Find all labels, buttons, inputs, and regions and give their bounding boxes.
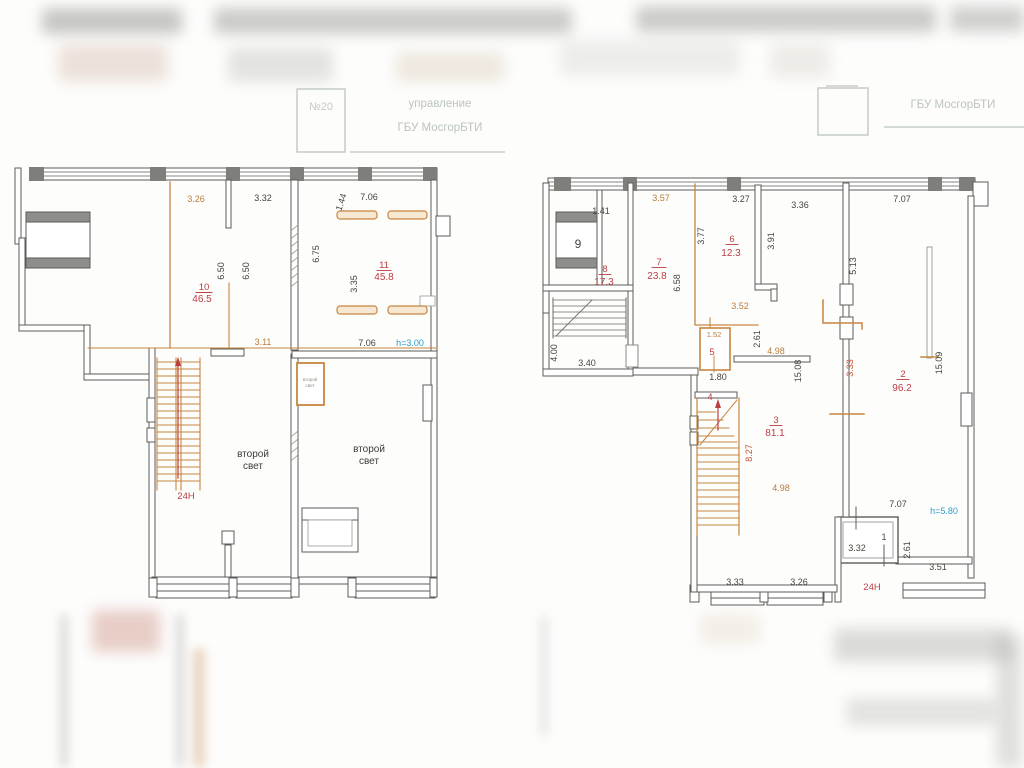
- stair-count-label: 24H: [863, 582, 881, 593]
- dim-label: 3.33: [845, 359, 855, 377]
- ceiling-height-label: h=3.00: [396, 338, 424, 348]
- dim-label: 1.44: [334, 192, 349, 212]
- ceiling-height-label: h=5.80: [930, 506, 958, 516]
- room-number: 7: [656, 257, 661, 268]
- dim-label: 3.35: [349, 275, 359, 293]
- dim-label: 4.98: [767, 346, 785, 356]
- second-light-text: второй: [353, 444, 385, 455]
- elevator-shaft: [26, 212, 90, 268]
- room-area: 45.8: [374, 272, 394, 283]
- second-light-label-a: второй свет: [237, 449, 269, 472]
- room-area: 12.3: [721, 248, 741, 259]
- room-area: 23.8: [647, 271, 667, 282]
- stamp-number: №20: [309, 101, 333, 113]
- dim-label: 1.41: [592, 206, 610, 216]
- dim-label: 7.07: [893, 194, 911, 204]
- bti-stamp-right: ГБУ МосгорБТИ: [818, 86, 1024, 135]
- room-number: 4: [707, 392, 712, 403]
- stair-count-label: 24H: [177, 491, 195, 502]
- dim-label: 3.11: [255, 337, 272, 347]
- dim-label: 15.08: [793, 360, 803, 383]
- left-plan-orange-partitions: [88, 182, 437, 405]
- second-light-text: свет: [243, 461, 263, 472]
- dim-label: 3.77: [696, 227, 706, 245]
- dim-label: 2.61: [902, 541, 912, 559]
- floor-plans-drawing: №20 управление ГБУ МосгорБТИ ГБУ МосгорБ…: [0, 0, 1024, 768]
- room-number: 1: [881, 532, 886, 542]
- dim-label: 3.36: [791, 200, 809, 210]
- dim-label: 1.80: [709, 372, 727, 382]
- dim-label: 3.51: [929, 562, 947, 572]
- room-3-label: 3 81.1: [765, 415, 785, 439]
- dim-label: 3.32: [848, 543, 866, 553]
- dim-label: 6.50: [216, 262, 226, 280]
- dim-label: 3.26: [187, 194, 205, 204]
- dim-label: 6.50: [241, 262, 251, 280]
- scanned-floor-plan-sheet: №20 управление ГБУ МосгорБТИ ГБУ МосгорБ…: [0, 0, 1024, 768]
- dim-label: 3.52: [731, 301, 749, 311]
- dim-label: 5.13: [848, 257, 858, 275]
- room-7-label: 7 23.8: [647, 257, 667, 282]
- dim-label: 3.32: [254, 193, 272, 203]
- room-number: 10: [199, 282, 210, 293]
- room-number: 3: [773, 415, 778, 426]
- dim-label: 8.27: [744, 444, 754, 462]
- stamp-org-line1: ГБУ МосгорБТИ: [911, 99, 996, 111]
- left-plan: 3.26 3.32 1.44 7.06 6.50 6.50 6.75 3.35 …: [15, 167, 450, 598]
- second-light-label-b: второй свет: [353, 444, 385, 467]
- room-6-label: 6 12.3: [721, 234, 741, 259]
- room-2-label: 2 96.2: [892, 369, 912, 394]
- room-10-label: 10 46.5: [192, 282, 212, 305]
- dim-label: 15.09: [934, 352, 944, 375]
- room-number: 8: [602, 264, 607, 275]
- room-number: 9: [575, 237, 582, 251]
- left-plan-staircase: [157, 357, 200, 490]
- second-light-text-small: второй: [303, 376, 318, 382]
- stamp-org-line2: ГБУ МосгорБТИ: [398, 122, 483, 134]
- room-number: 11: [379, 260, 389, 271]
- dim-label: 4.00: [549, 344, 559, 362]
- room-number: 2: [900, 369, 905, 380]
- room-number: 6: [729, 234, 734, 245]
- dim-label: 6.58: [672, 274, 682, 292]
- room-number: 5: [709, 347, 714, 358]
- room-area: 17.3: [594, 277, 614, 288]
- stamp-org-line1: управление: [409, 98, 472, 110]
- second-light-text: второй: [237, 449, 269, 460]
- room-area: 46.5: [192, 294, 212, 305]
- left-plan-labels: 3.26 3.32 1.44 7.06 6.50 6.50 6.75 3.35 …: [177, 192, 424, 502]
- entrance-staircase: [553, 298, 626, 338]
- dim-label: 7.06: [360, 192, 378, 202]
- dim-label: 7.06: [358, 338, 376, 348]
- room-area: 96.2: [892, 383, 912, 394]
- right-plan: 1.41 3.57 3.27 3.36 7.07 9 8 17.3 7 23.8…: [543, 177, 988, 605]
- dim-label: 3.33: [726, 577, 744, 587]
- dim-label: 3.91: [766, 232, 776, 250]
- room-area: 81.1: [765, 428, 785, 439]
- dim-label: 3.27: [732, 194, 750, 204]
- second-light-text-small: свет: [305, 383, 314, 388]
- dim-label: 4.98: [772, 483, 790, 493]
- bti-stamp-left: №20 управление ГБУ МосгорБТИ: [297, 89, 505, 152]
- dim-label: 3.26: [790, 577, 808, 587]
- dim-label: 3.57: [652, 193, 670, 203]
- dim-label: 1.52: [707, 330, 722, 339]
- right-plan-staircase: [697, 398, 739, 535]
- shaft-protrusion: [302, 508, 358, 552]
- dim-label: 2.61: [752, 330, 762, 348]
- dim-label: 3.40: [578, 358, 596, 368]
- dim-label: 6.75: [311, 245, 321, 263]
- left-plan-walls: [15, 167, 450, 598]
- dim-label: 7.07: [889, 499, 907, 509]
- room-11-label: 11 45.8: [374, 260, 394, 283]
- second-light-text: свет: [359, 456, 379, 467]
